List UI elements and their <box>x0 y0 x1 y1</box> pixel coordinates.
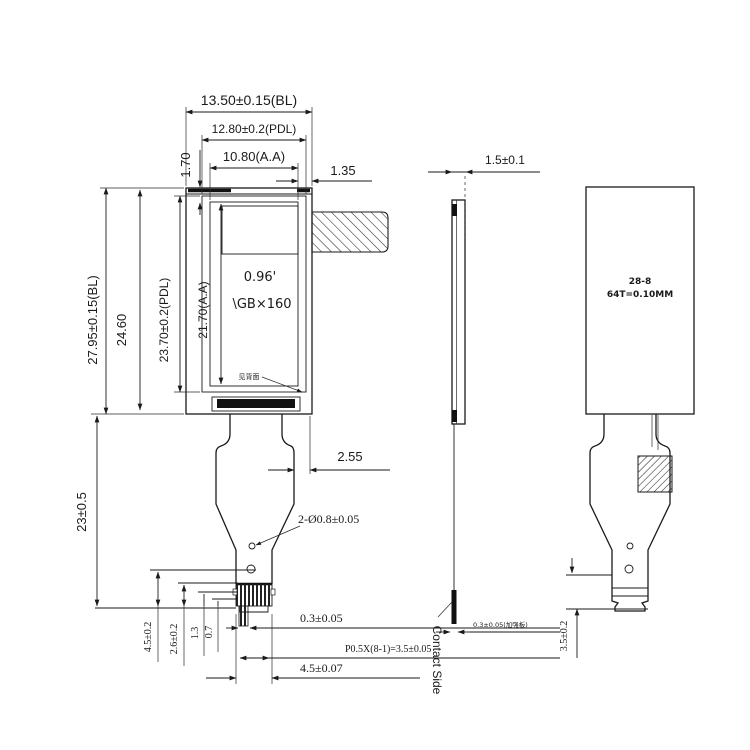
back-ic-hatch <box>638 456 672 492</box>
fpc-outline <box>216 414 294 584</box>
back-view: 28-8 64T=0.10MM 3.5±0.2 <box>559 187 694 658</box>
back-label-1: 28-8 <box>629 277 652 287</box>
display-aa-rect <box>210 202 298 386</box>
back-hole-upper <box>627 543 633 549</box>
dim-h1: 4.5±0.2 <box>143 622 154 653</box>
fpc-hole-upper <box>249 543 255 549</box>
dim-pdl-height: 23.70±0.2(PDL) <box>157 278 171 363</box>
fpc-comb-connector <box>236 584 272 606</box>
dim-stiffener: 0.3±0.05(加强板) <box>473 620 528 629</box>
dim-edge-offset: 1.35 <box>330 163 355 178</box>
dim-bl-width: 13.50±0.15(BL) <box>201 92 297 108</box>
heat-seal-bar <box>217 399 295 408</box>
dim-aa-width: 10.80(A.A) <box>223 149 285 164</box>
dim-mid-height: 24.60 <box>114 314 129 347</box>
dim-back-tail: 3.5±0.2 <box>559 621 570 652</box>
see-back-note: 见背面 <box>239 372 260 381</box>
dim-top-margin: 1.70 <box>178 152 193 177</box>
dim-tail-width: 4.5±0.07 <box>300 661 343 675</box>
display-size-label: 0.96' <box>244 270 277 285</box>
fpc-hole-lower <box>247 565 255 573</box>
dim-pitch: P0.5X(8-1)=3.5±0.05 <box>345 644 431 655</box>
dim-fpc-offset: 2.55 <box>337 449 362 464</box>
back-hole-lower <box>625 565 633 573</box>
dim-h4: 0.7 <box>204 626 215 639</box>
front-view: 0.96' \GB×160 见背面 <box>186 188 388 626</box>
side-view: 1.5±0.1 0.3±0.05(加强板) Contact Side <box>428 153 560 695</box>
display-subarea-rect <box>222 206 298 254</box>
dim-bl-height: 27.95±0.15(BL) <box>85 275 100 365</box>
dim-holes: 2-Ø0.8±0.05 <box>298 512 359 526</box>
display-pdl-rect <box>202 196 306 392</box>
front-dimensions: 13.50±0.15(BL) 12.80±0.2(PDL) 10.80(A.A)… <box>74 92 560 684</box>
side-stiffener <box>452 590 457 624</box>
fpc-pin-detail <box>239 606 248 626</box>
dimension-drawing-svg: 0.96' \GB×160 见背面 13.50±0.15(BL) 12.80±0… <box>0 0 750 750</box>
side-glass <box>452 200 465 424</box>
dim-h2: 2.6±0.2 <box>169 624 180 655</box>
side-tab-top <box>452 204 457 216</box>
fpc-tape-hatch <box>312 212 388 252</box>
dim-pdl-width: 12.80±0.2(PDL) <box>212 122 297 136</box>
dim-pin-width: 0.3±0.05 <box>300 611 343 625</box>
back-outline <box>586 187 694 414</box>
display-resolution-label: \GB×160 <box>232 297 291 312</box>
dim-aa-height: 21.70(A.A) <box>196 281 210 338</box>
dim-fpc-length: 23±0.5 <box>74 492 89 532</box>
contact-side-label: Contact Side <box>430 626 444 695</box>
side-tab-bottom <box>452 410 457 422</box>
dim-h3: 1.3 <box>190 627 201 640</box>
drawing-canvas: 0.96' \GB×160 见背面 13.50±0.15(BL) 12.80±0… <box>0 0 750 750</box>
comb-notch-right <box>271 589 275 595</box>
back-label-2: 64T=0.10MM <box>607 290 673 300</box>
see-back-leader <box>262 377 302 392</box>
dim-thickness: 1.5±0.1 <box>485 153 525 167</box>
